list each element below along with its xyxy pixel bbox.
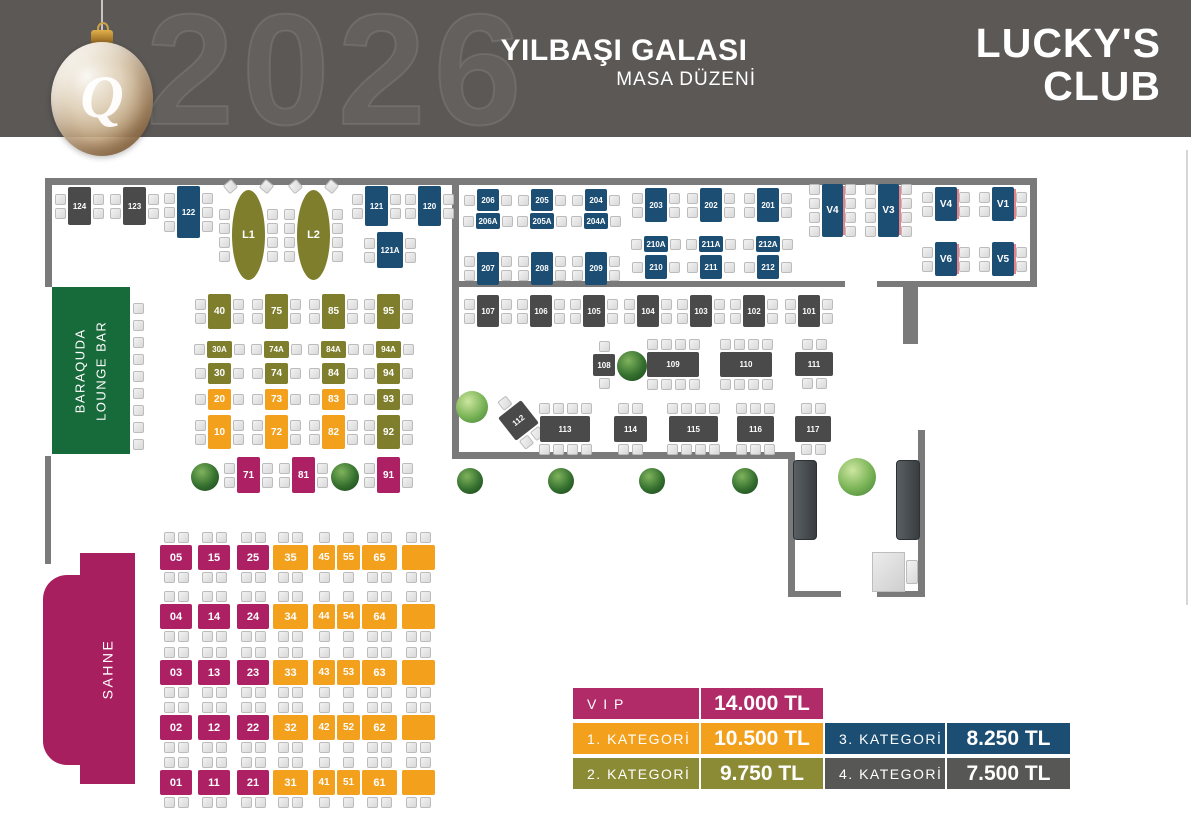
table-group: 41 <box>313 770 335 795</box>
table-210[interactable]: 210 <box>645 255 667 279</box>
table-group: 34 <box>273 604 308 629</box>
chair <box>555 270 566 281</box>
table-group: 122 <box>177 186 200 238</box>
chair <box>278 687 289 698</box>
table-41[interactable]: 41 <box>313 770 335 795</box>
table-group: 35 <box>273 545 308 570</box>
chair <box>420 757 431 768</box>
chair <box>252 313 263 324</box>
chair <box>364 420 375 431</box>
chair <box>195 434 206 445</box>
chair <box>406 591 417 602</box>
table-122[interactable]: 122 <box>177 186 200 238</box>
wall <box>877 281 1037 287</box>
table-82[interactable]: 82 <box>322 415 345 449</box>
table-52[interactable]: 52 <box>337 715 360 740</box>
chair <box>501 256 512 267</box>
chair <box>278 702 289 713</box>
table-group: 30 <box>208 363 231 384</box>
table-61[interactable]: 61 <box>362 770 397 795</box>
table-84A[interactable]: 84A <box>321 341 346 358</box>
table-81[interactable]: 81 <box>292 457 315 493</box>
table-12[interactable]: 12 <box>198 715 230 740</box>
table-32[interactable]: 32 <box>273 715 308 740</box>
chair <box>632 207 643 218</box>
table-104[interactable]: 104 <box>637 295 659 327</box>
table-group: 210 <box>645 255 667 279</box>
chair <box>178 532 189 543</box>
chair <box>815 444 826 455</box>
chair <box>464 299 475 310</box>
table-group: 205A <box>530 213 554 229</box>
chair <box>720 379 731 390</box>
tree <box>732 468 758 494</box>
chair <box>347 420 358 431</box>
table-13[interactable]: 13 <box>198 660 230 685</box>
table-22[interactable]: 22 <box>237 715 269 740</box>
chair <box>402 434 413 445</box>
chair <box>279 463 290 474</box>
table-115[interactable]: 115 <box>669 416 718 442</box>
table-group: 112 <box>498 400 539 441</box>
table-94[interactable]: 94 <box>377 363 400 384</box>
chair <box>402 313 413 324</box>
chair <box>607 299 618 310</box>
table-72[interactable]: 72 <box>265 415 288 449</box>
table-206A[interactable]: 206A <box>476 213 500 229</box>
table-75[interactable]: 75 <box>265 294 288 329</box>
table-43[interactable]: 43 <box>313 660 335 685</box>
table-40[interactable]: 40 <box>208 294 231 329</box>
table-124[interactable]: 124 <box>68 187 91 225</box>
chair <box>714 299 725 310</box>
chair <box>319 591 330 602</box>
chair <box>284 251 295 262</box>
table-15[interactable]: 15 <box>198 545 230 570</box>
table-207[interactable]: 207 <box>477 252 499 285</box>
table-105[interactable]: 105 <box>583 295 605 327</box>
chair <box>555 195 566 206</box>
table-group: 05 <box>160 545 192 570</box>
chair <box>233 394 244 405</box>
chair <box>352 194 363 205</box>
chair <box>343 647 354 658</box>
table-35[interactable]: 35 <box>273 545 308 570</box>
table-45[interactable]: 45 <box>313 545 335 570</box>
table-94A[interactable]: 94A <box>376 341 401 358</box>
table-04[interactable]: 04 <box>160 604 192 629</box>
chair <box>845 198 856 209</box>
table-group: 204A <box>584 213 608 229</box>
legend-price: 10.500 TL <box>701 723 823 754</box>
chair <box>347 368 358 379</box>
table-63[interactable]: 63 <box>362 660 397 685</box>
table-33[interactable]: 33 <box>273 660 308 685</box>
table-V5[interactable]: V5 <box>992 242 1014 276</box>
chair <box>405 252 416 263</box>
chair <box>865 212 876 223</box>
table-205[interactable]: 205 <box>531 189 553 211</box>
chair <box>670 239 681 250</box>
table-group: 204 <box>585 189 607 211</box>
table-120[interactable]: 120 <box>418 186 441 226</box>
chair <box>364 299 375 310</box>
chair <box>607 313 618 324</box>
table-111[interactable]: 111 <box>795 352 833 376</box>
chair <box>216 687 227 698</box>
table-group: 104 <box>637 295 659 327</box>
chair <box>381 532 392 543</box>
table-group: 83 <box>322 389 345 410</box>
bar-stool <box>133 422 144 433</box>
table-44[interactable]: 44 <box>313 604 335 629</box>
chair <box>501 299 512 310</box>
chair <box>267 209 278 220</box>
tree <box>548 468 574 494</box>
chair <box>736 403 747 414</box>
chair <box>624 299 635 310</box>
table-group: 71 <box>237 457 260 493</box>
table-group: 40 <box>208 294 231 329</box>
chair <box>553 444 564 455</box>
table-blank[interactable] <box>402 660 435 685</box>
table-L2[interactable]: L2 <box>297 190 330 280</box>
table-62[interactable]: 62 <box>362 715 397 740</box>
table-21[interactable]: 21 <box>237 770 269 795</box>
table-206[interactable]: 206 <box>477 189 499 211</box>
table-23[interactable]: 23 <box>237 660 269 685</box>
chair <box>164 757 175 768</box>
chair <box>317 463 328 474</box>
table-31[interactable]: 31 <box>273 770 308 795</box>
chair <box>390 194 401 205</box>
table-117[interactable]: 117 <box>795 416 831 442</box>
table-05[interactable]: 05 <box>160 545 192 570</box>
chair <box>241 757 252 768</box>
chair <box>367 687 378 698</box>
chair <box>164 572 175 583</box>
table-202[interactable]: 202 <box>700 188 722 222</box>
table-group: 107 <box>477 295 499 327</box>
table-212A[interactable]: 212A <box>756 236 780 252</box>
chair <box>241 742 252 753</box>
table-123[interactable]: 123 <box>123 187 146 225</box>
chair <box>406 702 417 713</box>
table-208[interactable]: 208 <box>531 252 553 285</box>
chair <box>725 239 736 250</box>
table-211A[interactable]: 211A <box>699 236 723 252</box>
chair <box>292 631 303 642</box>
table-group: 63 <box>362 660 397 685</box>
tree <box>617 351 647 381</box>
table-20[interactable]: 20 <box>208 389 231 410</box>
table-102[interactable]: 102 <box>743 295 765 327</box>
chair <box>347 434 358 445</box>
chair <box>922 206 933 217</box>
table-113[interactable]: 113 <box>540 416 590 442</box>
table-74A[interactable]: 74A <box>264 341 289 358</box>
chair <box>767 313 778 324</box>
chair <box>278 647 289 658</box>
table-101[interactable]: 101 <box>798 295 820 327</box>
table-210A[interactable]: 210A <box>644 236 668 252</box>
table-V4[interactable]: V4 <box>935 187 957 221</box>
chair <box>501 313 512 324</box>
chair <box>736 444 747 455</box>
table-blank[interactable] <box>402 770 435 795</box>
table-group: 52 <box>337 715 360 740</box>
table-212[interactable]: 212 <box>757 255 779 279</box>
table-group: 84A <box>321 341 346 358</box>
table-V4[interactable]: V4 <box>822 184 843 237</box>
chair <box>865 198 876 209</box>
chair <box>55 194 66 205</box>
chair <box>367 572 378 583</box>
table-93[interactable]: 93 <box>377 389 400 410</box>
chair <box>406 742 417 753</box>
table-91[interactable]: 91 <box>377 457 400 493</box>
table-group: 01 <box>160 770 192 795</box>
chair <box>195 313 206 324</box>
table-103[interactable]: 103 <box>690 295 712 327</box>
chair <box>405 238 416 249</box>
chair <box>278 572 289 583</box>
table-group: 14 <box>198 604 230 629</box>
table-34[interactable]: 34 <box>273 604 308 629</box>
chair <box>677 313 688 324</box>
table-V6[interactable]: V6 <box>935 242 957 276</box>
table-group: 103 <box>690 295 712 327</box>
chair <box>319 742 330 753</box>
table-121A[interactable]: 121A <box>377 232 403 268</box>
table-25[interactable]: 25 <box>237 545 269 570</box>
table-03[interactable]: 03 <box>160 660 192 685</box>
chair <box>367 591 378 602</box>
table-group: 93 <box>377 389 400 410</box>
chair <box>667 403 678 414</box>
chair <box>332 209 343 220</box>
chair <box>241 591 252 602</box>
chair <box>647 339 658 350</box>
chair <box>901 226 912 237</box>
table-71[interactable]: 71 <box>237 457 260 493</box>
table-95[interactable]: 95 <box>377 294 400 329</box>
chair <box>785 313 796 324</box>
table-114[interactable]: 114 <box>614 416 647 442</box>
table-group: 201 <box>757 188 779 222</box>
table-24[interactable]: 24 <box>237 604 269 629</box>
table-group: 13 <box>198 660 230 685</box>
table-205A[interactable]: 205A <box>530 213 554 229</box>
chair <box>252 420 263 431</box>
chair <box>317 477 328 488</box>
table-65[interactable]: 65 <box>362 545 397 570</box>
chair <box>781 193 792 204</box>
table-group <box>402 660 435 685</box>
chair <box>724 207 735 218</box>
table-group: 123 <box>123 187 146 225</box>
chair <box>555 256 566 267</box>
chair <box>262 463 273 474</box>
table-85[interactable]: 85 <box>322 294 345 329</box>
chair <box>343 631 354 642</box>
chair <box>202 702 213 713</box>
table-116[interactable]: 116 <box>737 416 774 442</box>
table-110[interactable]: 110 <box>720 352 772 377</box>
table-group: 121 <box>365 186 388 226</box>
table-51[interactable]: 51 <box>337 770 360 795</box>
chair <box>332 237 343 248</box>
table-L1[interactable]: L1 <box>232 190 265 280</box>
table-204[interactable]: 204 <box>585 189 607 211</box>
chair <box>402 463 413 474</box>
chair <box>319 572 330 583</box>
lounge-bar-line1: BARAQUDA <box>70 320 91 420</box>
legend-price: 7.500 TL <box>947 758 1070 789</box>
table-group: 111 <box>795 352 833 376</box>
table-211[interactable]: 211 <box>700 255 722 279</box>
table-30[interactable]: 30 <box>208 363 231 384</box>
table-74[interactable]: 74 <box>265 363 288 384</box>
chair <box>959 192 970 203</box>
table-54[interactable]: 54 <box>337 604 360 629</box>
table-group: 209 <box>585 252 607 285</box>
chair <box>381 591 392 602</box>
chair <box>744 207 755 218</box>
table-84[interactable]: 84 <box>322 363 345 384</box>
table-group: 74 <box>265 363 288 384</box>
chair <box>195 394 206 405</box>
chair <box>367 702 378 713</box>
table-55[interactable]: 55 <box>337 545 360 570</box>
chair <box>164 221 175 232</box>
chair <box>364 434 375 445</box>
chair <box>632 444 643 455</box>
chair <box>785 299 796 310</box>
table-group: 208 <box>531 252 553 285</box>
chair <box>865 226 876 237</box>
chair <box>845 226 856 237</box>
table-201[interactable]: 201 <box>757 188 779 222</box>
lounge-bar-area: BARAQUDA LOUNGE BAR <box>52 287 130 454</box>
chair <box>624 313 635 324</box>
table-group: 101 <box>798 295 820 327</box>
table-group: 116 <box>737 416 774 442</box>
chair <box>255 572 266 583</box>
chair <box>164 532 175 543</box>
chair <box>406 757 417 768</box>
chair <box>767 299 778 310</box>
table-group: 62 <box>362 715 397 740</box>
chair <box>539 403 550 414</box>
table-203[interactable]: 203 <box>645 188 667 222</box>
table-92[interactable]: 92 <box>377 415 400 449</box>
legend-row-left-0: V I P14.000 TL <box>573 688 823 719</box>
chair <box>233 368 244 379</box>
table-blank[interactable] <box>402 545 435 570</box>
table-108[interactable]: 108 <box>593 354 615 376</box>
chair <box>278 591 289 602</box>
table-73[interactable]: 73 <box>265 389 288 410</box>
chair <box>216 742 227 753</box>
table-group: 115 <box>669 416 718 442</box>
table-01[interactable]: 01 <box>160 770 192 795</box>
chair <box>255 647 266 658</box>
table-blank[interactable] <box>402 604 435 629</box>
chair <box>405 194 416 205</box>
table-121[interactable]: 121 <box>365 186 388 226</box>
table-30A[interactable]: 30A <box>207 341 232 358</box>
wall <box>452 281 845 287</box>
chair <box>202 207 213 218</box>
chair <box>367 742 378 753</box>
table-V3[interactable]: V3 <box>878 184 899 237</box>
table-53[interactable]: 53 <box>337 660 360 685</box>
table-83[interactable]: 83 <box>322 389 345 410</box>
event-poster: 2026 YILBAŞI GALASI MASA DÜZENİ LUCKY'S … <box>0 0 1191 839</box>
table-42[interactable]: 42 <box>313 715 335 740</box>
table-64[interactable]: 64 <box>362 604 397 629</box>
chair <box>255 742 266 753</box>
table-V1[interactable]: V1 <box>992 187 1014 221</box>
chair <box>748 379 759 390</box>
chair <box>164 193 175 204</box>
chair <box>202 687 213 698</box>
chair <box>420 532 431 543</box>
chair <box>687 262 698 273</box>
chair <box>178 757 189 768</box>
brand-initial: Q <box>80 63 123 132</box>
table-10[interactable]: 10 <box>208 415 231 449</box>
table-02[interactable]: 02 <box>160 715 192 740</box>
legend-row-left-1: 1. KATEGORİ10.500 TL <box>573 723 823 754</box>
chair <box>195 368 206 379</box>
chair <box>822 313 833 324</box>
chair <box>661 379 672 390</box>
table-106[interactable]: 106 <box>530 295 552 327</box>
table-group: 108 <box>593 354 615 376</box>
wall <box>1030 185 1037 281</box>
table-204A[interactable]: 204A <box>584 213 608 229</box>
chair <box>572 195 583 206</box>
chair <box>343 532 354 543</box>
chair <box>922 247 933 258</box>
table-11[interactable]: 11 <box>198 770 230 795</box>
table-group <box>402 770 435 795</box>
chair <box>724 262 735 273</box>
table-group <box>402 715 435 740</box>
table-107[interactable]: 107 <box>477 295 499 327</box>
table-14[interactable]: 14 <box>198 604 230 629</box>
table-group: 121A <box>377 232 403 268</box>
chair <box>420 742 431 753</box>
chair <box>178 742 189 753</box>
chair <box>309 299 320 310</box>
table-blank[interactable] <box>402 715 435 740</box>
chair <box>332 223 343 234</box>
table-group: 10 <box>208 415 231 449</box>
chair <box>363 344 374 355</box>
table-209[interactable]: 209 <box>585 252 607 285</box>
table-group: 65 <box>362 545 397 570</box>
wall <box>788 591 841 597</box>
chair <box>290 420 301 431</box>
chair <box>381 797 392 808</box>
chair <box>567 444 578 455</box>
chair <box>202 532 213 543</box>
chair <box>865 184 876 195</box>
table-109[interactable]: 109 <box>647 352 699 377</box>
